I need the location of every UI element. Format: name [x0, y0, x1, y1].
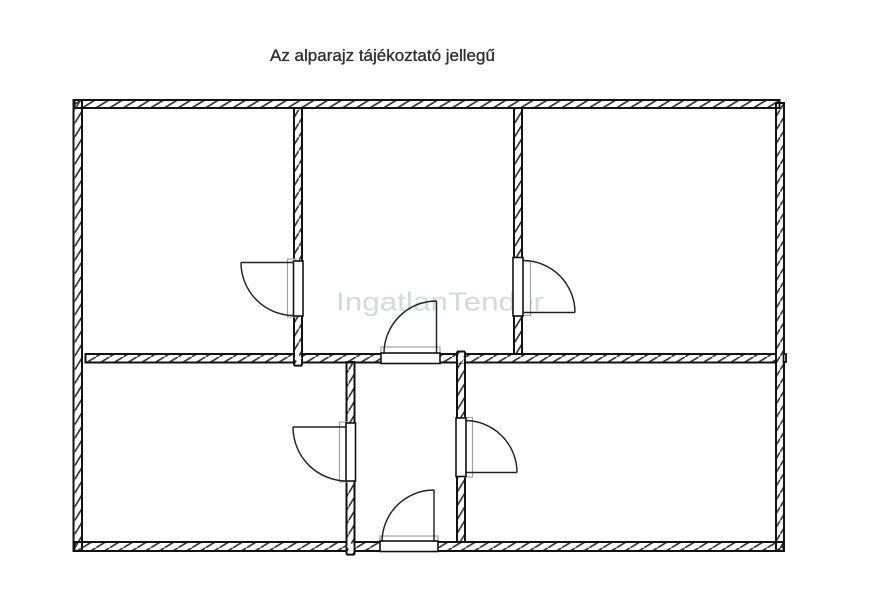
- svg-text:Az alparajz tájékoztató jelleg: Az alparajz tájékoztató jellegű: [270, 46, 495, 65]
